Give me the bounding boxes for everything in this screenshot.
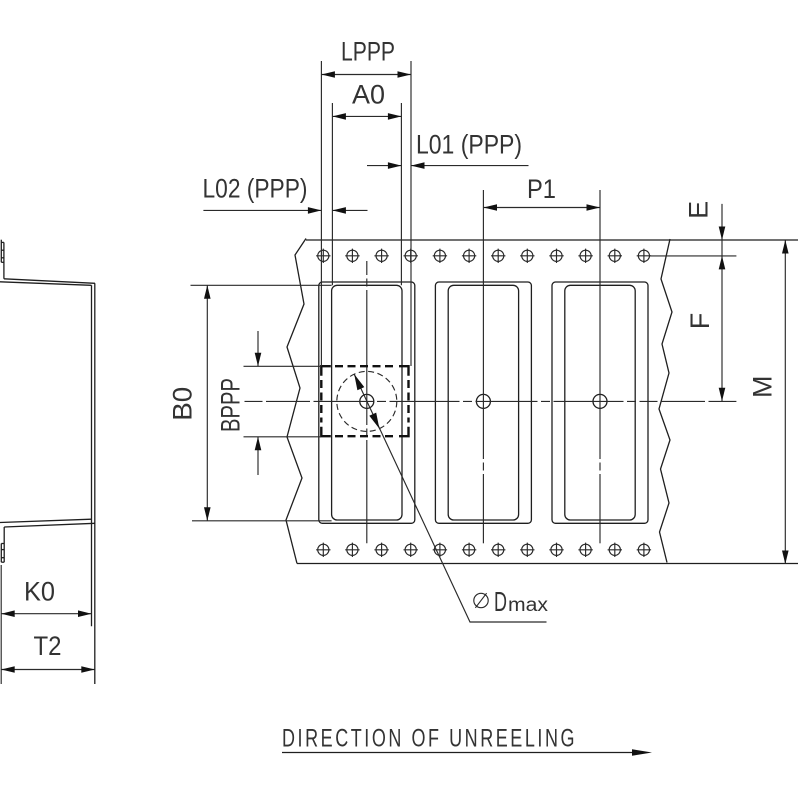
svg-text:A0: A0 [352, 80, 385, 110]
svg-text:L01 (PPP): L01 (PPP) [416, 130, 522, 160]
svg-text:B0: B0 [168, 387, 198, 421]
svg-text:DIRECTION OF UNREELING: DIRECTION OF UNREELING [282, 724, 577, 753]
svg-text:T2: T2 [34, 631, 62, 661]
svg-text:D: D [494, 586, 507, 617]
svg-text:max: max [508, 595, 549, 616]
svg-text:L02 (PPP): L02 (PPP) [203, 174, 308, 204]
svg-text:M: M [748, 375, 778, 398]
svg-text:F: F [685, 313, 715, 330]
svg-text:LPPP: LPPP [341, 37, 395, 67]
svg-text:E: E [684, 201, 714, 219]
svg-text:P1: P1 [527, 174, 556, 204]
svg-text:BPPP: BPPP [216, 378, 246, 432]
svg-text:K0: K0 [24, 577, 55, 607]
